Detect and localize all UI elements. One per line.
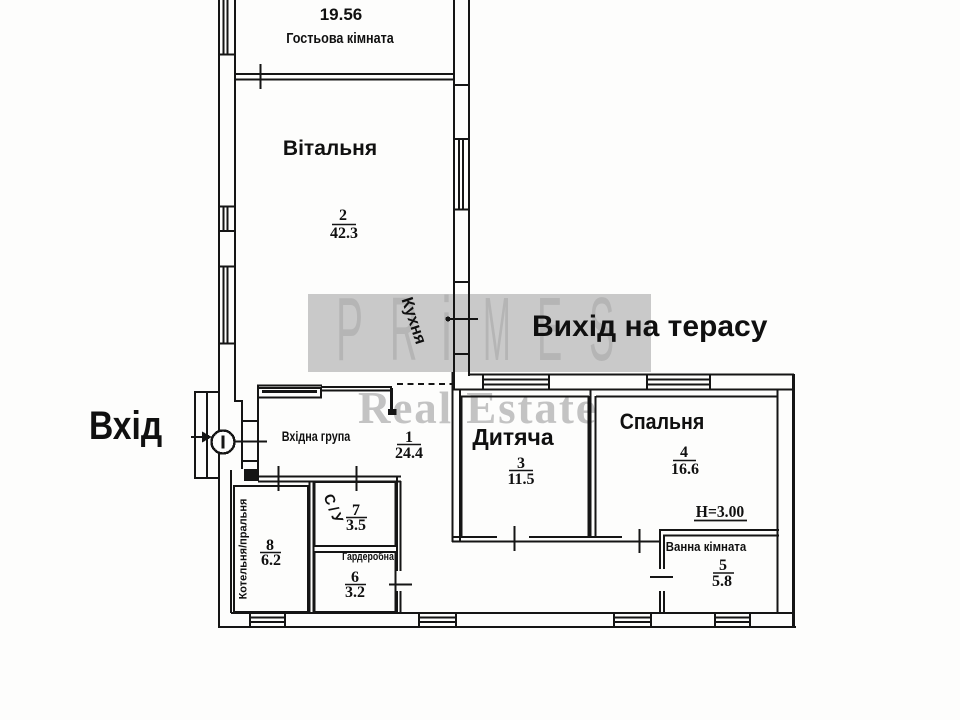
svg-text:11.5: 11.5 xyxy=(507,471,534,488)
svg-text:M: M xyxy=(483,280,511,379)
svg-text:Гардеробна: Гардеробна xyxy=(342,551,394,563)
svg-text:16.6: 16.6 xyxy=(671,461,699,478)
svg-text:3: 3 xyxy=(517,455,525,472)
svg-text:Вітальня: Вітальня xyxy=(283,137,377,160)
svg-text:5: 5 xyxy=(719,557,727,574)
svg-text:6.2: 6.2 xyxy=(261,552,281,569)
svg-text:42.3: 42.3 xyxy=(330,225,358,242)
svg-text:Дитяча: Дитяча xyxy=(472,424,554,450)
svg-text:1: 1 xyxy=(405,429,413,446)
svg-text:Н=3.00: Н=3.00 xyxy=(696,501,744,521)
svg-text:Котельня/пральня: Котельня/пральня xyxy=(237,499,249,600)
svg-text:i: i xyxy=(441,279,452,379)
svg-text:P: P xyxy=(336,279,363,380)
svg-text:Гостьова кімната: Гостьова кімната xyxy=(286,29,394,46)
svg-text:5.8: 5.8 xyxy=(712,573,732,590)
svg-text:Спальня: Спальня xyxy=(620,410,705,434)
svg-text:4: 4 xyxy=(680,444,688,461)
svg-text:Вихід на терасу: Вихід на терасу xyxy=(532,310,768,343)
svg-text:24.4: 24.4 xyxy=(395,445,423,462)
svg-text:Ванна кімната: Ванна кімната xyxy=(666,539,747,554)
svg-text:Вхід: Вхід xyxy=(89,403,162,447)
svg-text:Вхідна група: Вхідна група xyxy=(282,429,351,444)
svg-text:2: 2 xyxy=(339,207,347,224)
svg-text:3.2: 3.2 xyxy=(345,584,365,601)
svg-text:19.56: 19.56 xyxy=(320,5,363,24)
svg-text:3.5: 3.5 xyxy=(346,517,366,534)
